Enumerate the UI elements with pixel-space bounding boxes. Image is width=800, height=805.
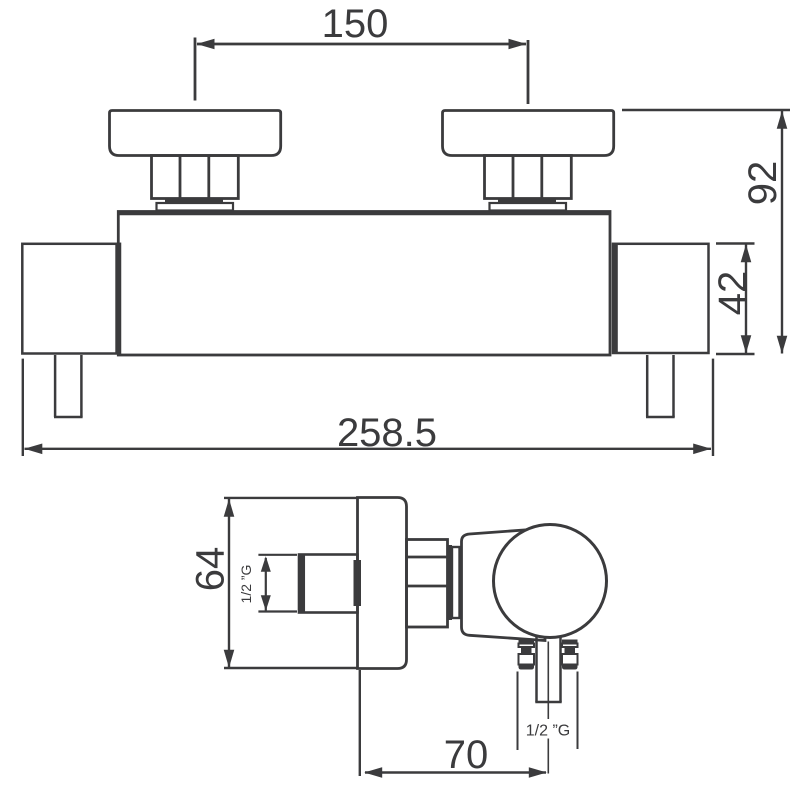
svg-text:92: 92	[741, 161, 785, 206]
svg-text:1/2 ”G: 1/2 ”G	[526, 723, 570, 740]
svg-text:150: 150	[322, 2, 389, 46]
svg-text:64: 64	[189, 547, 233, 592]
svg-text:42: 42	[711, 271, 755, 316]
svg-text:70: 70	[444, 733, 489, 777]
svg-text:1/2 ”G: 1/2 ”G	[238, 565, 254, 604]
svg-text:258.5: 258.5	[337, 411, 437, 455]
